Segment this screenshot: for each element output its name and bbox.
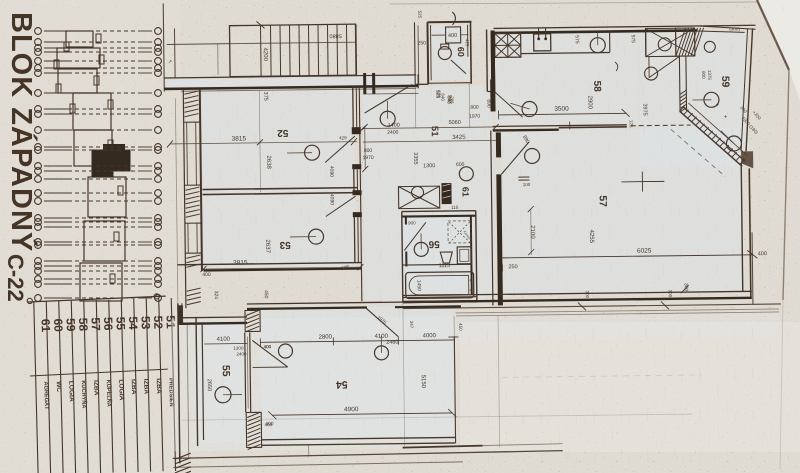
svg-text:265: 265: [449, 96, 454, 104]
svg-text:IZBA: IZBA: [142, 379, 149, 395]
svg-text:3355: 3355: [412, 152, 418, 164]
svg-text:375: 375: [262, 92, 268, 101]
svg-text:IZBA: IZBA: [155, 378, 162, 394]
svg-text:5060: 5060: [449, 120, 461, 126]
svg-text:3500: 3500: [554, 106, 569, 113]
svg-text:53: 53: [138, 316, 152, 330]
svg-text:800: 800: [470, 105, 479, 111]
svg-text:LOGIA: LOGIA: [117, 379, 125, 400]
svg-text:56: 56: [428, 238, 440, 249]
svg-text:250: 250: [418, 40, 427, 46]
svg-text:400: 400: [265, 421, 274, 427]
svg-text:450: 450: [263, 290, 269, 299]
svg-text:52: 52: [151, 315, 165, 329]
svg-text:4090: 4090: [329, 194, 335, 205]
svg-text:+: +: [724, 115, 728, 121]
svg-text:400: 400: [264, 344, 272, 349]
svg-text:54: 54: [336, 378, 348, 390]
svg-text:100: 100: [523, 182, 531, 187]
svg-text:250: 250: [508, 264, 517, 270]
svg-text:59: 59: [719, 76, 731, 88]
svg-text:400: 400: [448, 33, 457, 39]
svg-text:3815: 3815: [233, 259, 248, 266]
svg-text:525: 525: [417, 11, 422, 19]
svg-text:AGREGÁT: AGREGÁT: [42, 381, 50, 410]
svg-text:+: +: [716, 103, 720, 109]
svg-text:2900: 2900: [586, 96, 592, 110]
svg-text:BLOK ZÁPADNÝ: BLOK ZÁPADNÝ: [5, 12, 39, 252]
svg-text:61: 61: [39, 319, 53, 333]
svg-text:1970: 1970: [363, 155, 374, 161]
svg-text:125: 125: [629, 120, 634, 128]
svg-text:575: 575: [574, 35, 580, 44]
svg-text:3975: 3975: [641, 103, 647, 115]
svg-text:3425: 3425: [452, 135, 466, 141]
svg-text:1300: 1300: [423, 163, 435, 169]
svg-text:2100: 2100: [529, 225, 535, 239]
svg-text:4100: 4100: [217, 337, 231, 343]
svg-text:C-22: C-22: [3, 254, 28, 302]
svg-text:300: 300: [585, 291, 590, 299]
svg-text:+: +: [469, 278, 472, 284]
svg-text:1450: 1450: [416, 280, 422, 291]
svg-text:4900: 4900: [344, 406, 359, 413]
svg-text:2800: 2800: [319, 334, 333, 340]
svg-text:324: 324: [213, 291, 219, 300]
svg-text:58: 58: [76, 318, 90, 332]
svg-text:IZBA: IZBA: [130, 379, 137, 395]
svg-text:2638: 2638: [265, 156, 271, 170]
svg-text:53: 53: [279, 239, 291, 250]
svg-text:450: 450: [458, 323, 463, 331]
svg-text:800: 800: [701, 71, 706, 79]
svg-text:2400: 2400: [387, 130, 398, 136]
svg-text:1115: 1115: [439, 263, 450, 269]
svg-text:54: 54: [126, 316, 140, 330]
svg-text:2650: 2650: [206, 379, 212, 391]
svg-text:1375: 1375: [707, 70, 712, 81]
svg-text:4090: 4090: [328, 166, 334, 177]
svg-text:55: 55: [220, 365, 232, 377]
svg-text:4255: 4255: [588, 230, 594, 244]
svg-text:57: 57: [89, 317, 103, 331]
svg-text:575: 575: [630, 35, 636, 44]
svg-text:+: +: [469, 288, 472, 294]
svg-text:1970: 1970: [469, 114, 480, 120]
svg-text:5880: 5880: [329, 32, 341, 38]
svg-text:3815: 3815: [232, 135, 247, 142]
svg-text:115: 115: [451, 205, 459, 210]
svg-text:WC: WC: [55, 381, 62, 392]
svg-text:2637: 2637: [264, 240, 270, 254]
svg-text:58: 58: [591, 81, 602, 93]
svg-text:↗: ↗: [168, 59, 172, 65]
svg-text:400: 400: [758, 251, 767, 257]
svg-text:56: 56: [101, 317, 115, 331]
svg-text:55: 55: [113, 317, 127, 331]
svg-text:400: 400: [202, 272, 211, 278]
svg-text:59: 59: [64, 318, 78, 332]
svg-text:1300: 1300: [233, 346, 244, 351]
svg-text:57: 57: [597, 195, 609, 207]
svg-text:640: 640: [440, 93, 445, 101]
svg-text:61: 61: [460, 187, 470, 197]
svg-text:60: 60: [456, 47, 466, 57]
svg-text:4000: 4000: [423, 333, 437, 339]
svg-text:890: 890: [485, 99, 491, 108]
svg-text:800: 800: [364, 148, 373, 154]
svg-text:300: 300: [668, 290, 673, 298]
svg-text:429: 429: [339, 135, 347, 140]
svg-text:900: 900: [408, 220, 416, 225]
svg-text:LOGIA: LOGIA: [67, 381, 75, 402]
svg-text:6025: 6025: [637, 248, 652, 255]
svg-text:4200: 4200: [262, 48, 268, 62]
svg-text:347: 347: [409, 321, 414, 329]
svg-text:(300): (300): [729, 26, 740, 31]
svg-text:425: 425: [465, 39, 470, 47]
svg-text:5150: 5150: [420, 375, 426, 389]
svg-text:60: 60: [51, 318, 65, 332]
svg-text:IZBA: IZBA: [92, 380, 99, 396]
svg-text:52: 52: [277, 127, 289, 138]
